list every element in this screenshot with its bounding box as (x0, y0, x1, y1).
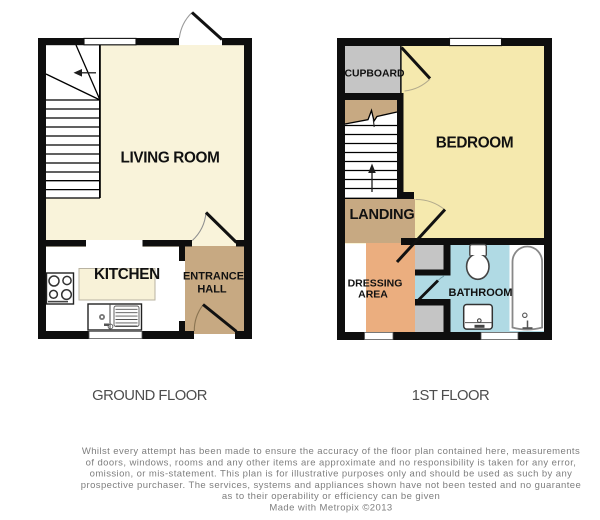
svg-text:ENTRANCE: ENTRANCE (183, 271, 244, 283)
svg-text:Whilst every attempt has been: Whilst every attempt has been made to en… (82, 446, 580, 457)
svg-text:of doors, windows, rooms and a: of doors, windows, rooms and any other i… (86, 457, 577, 468)
svg-text:HALL: HALL (197, 284, 227, 296)
svg-text:Made with Metropix ©2013: Made with Metropix ©2013 (269, 503, 392, 514)
svg-text:CUPBOARD: CUPBOARD (344, 69, 405, 80)
svg-text:LIVING ROOM: LIVING ROOM (121, 150, 220, 167)
svg-text:AREA: AREA (358, 289, 388, 301)
svg-text:KITCHEN: KITCHEN (94, 266, 160, 283)
svg-text:BATHROOM: BATHROOM (449, 287, 513, 299)
svg-text:1ST FLOOR: 1ST FLOOR (412, 388, 489, 404)
svg-text:omission, or mis-statement. Th: omission, or mis-statement. This plan is… (90, 469, 573, 480)
svg-text:prospective purchaser. The ser: prospective purchaser. The services, sys… (81, 480, 581, 491)
svg-text:as to their operability or eff: as to their operability or efficiency ca… (222, 491, 440, 502)
svg-text:LANDING: LANDING (349, 207, 414, 223)
svg-text:GROUND FLOOR: GROUND FLOOR (92, 388, 207, 404)
svg-text:BEDROOM: BEDROOM (436, 135, 513, 152)
